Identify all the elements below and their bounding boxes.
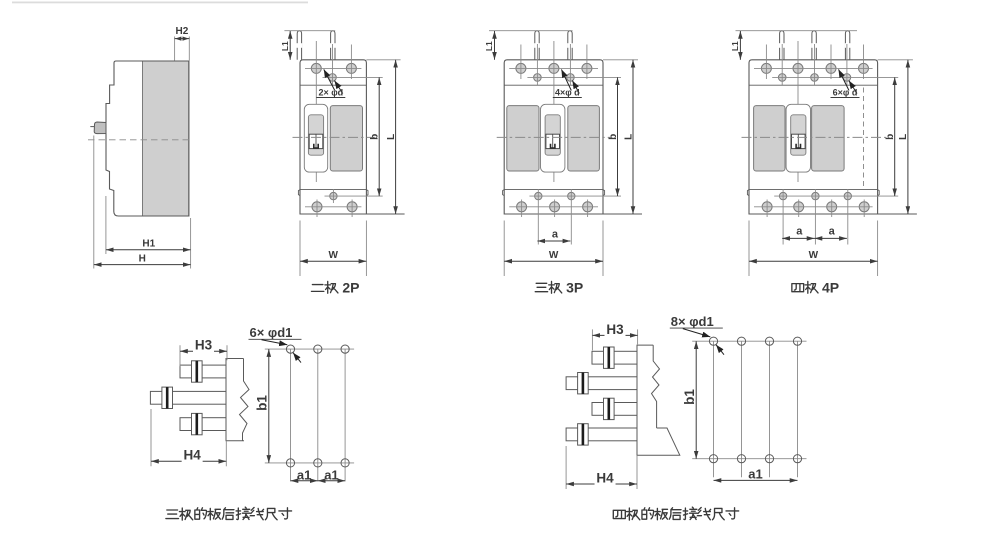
svg-text:6×φ d: 6×φ d bbox=[833, 88, 858, 98]
svg-text:a1: a1 bbox=[297, 467, 311, 482]
svg-text:H3: H3 bbox=[195, 338, 213, 353]
svg-text:6× φd1: 6× φd1 bbox=[250, 325, 293, 340]
svg-text:4×φ d: 4×φ d bbox=[555, 88, 580, 98]
svg-text:b1: b1 bbox=[255, 395, 270, 411]
svg-text:8× φd1: 8× φd1 bbox=[671, 314, 714, 329]
svg-text:L: L bbox=[386, 134, 397, 140]
svg-text:W: W bbox=[328, 250, 338, 261]
svg-text:a: a bbox=[552, 228, 559, 240]
svg-text:L1: L1 bbox=[280, 41, 290, 51]
svg-text:H: H bbox=[139, 253, 146, 264]
svg-text:H1: H1 bbox=[142, 239, 155, 250]
svg-text:b: b bbox=[608, 134, 619, 140]
svg-text:a: a bbox=[829, 226, 836, 238]
svg-text:a: a bbox=[796, 226, 803, 238]
svg-text:W: W bbox=[549, 250, 559, 261]
svg-text:b: b bbox=[885, 134, 896, 140]
svg-text:H4: H4 bbox=[596, 470, 614, 485]
svg-text:4P: 4P bbox=[822, 280, 839, 296]
svg-text:a1: a1 bbox=[748, 466, 762, 481]
svg-text:b1: b1 bbox=[682, 389, 697, 405]
svg-text:2P: 2P bbox=[342, 280, 359, 296]
svg-text:H3: H3 bbox=[606, 322, 624, 337]
svg-text:H4: H4 bbox=[184, 448, 202, 463]
svg-text:b: b bbox=[370, 134, 381, 140]
svg-text:L1: L1 bbox=[730, 41, 740, 51]
svg-text:H2: H2 bbox=[176, 26, 189, 37]
svg-text:W: W bbox=[809, 250, 819, 261]
svg-text:a1: a1 bbox=[324, 467, 338, 482]
svg-text:3P: 3P bbox=[566, 280, 583, 296]
svg-text:L: L bbox=[623, 134, 634, 140]
svg-text:L1: L1 bbox=[484, 41, 494, 51]
svg-text:2× φd: 2× φd bbox=[318, 88, 343, 98]
svg-text:L: L bbox=[898, 134, 909, 140]
